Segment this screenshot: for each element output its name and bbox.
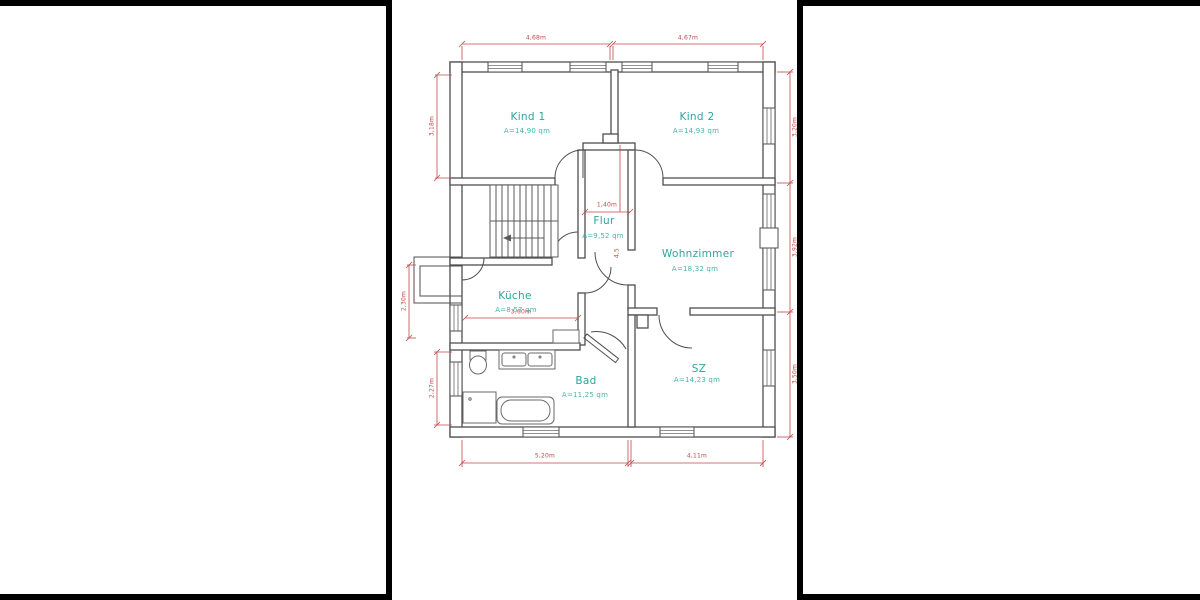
floor-plan-drawing [0,0,1200,600]
dim-left-bad: 2,27m [429,378,436,398]
dim-kueche-width: 3,60m [511,309,531,316]
area-label-kind1: A=14,90 qm [504,127,550,135]
dim-flur-door: 4,5 [614,248,621,258]
shower [463,392,496,423]
area-label-flur: A=9,52 qm [582,232,624,240]
dim-flur-width: 1,40m [597,202,617,209]
dim-bottom-left: 5,20m [535,453,555,460]
room-label-kind2: Kind 2 [680,111,715,123]
room-label-flur: Flur [593,215,614,227]
area-label-bad: A=11,25 qm [562,391,608,399]
dim-right-sz: 3,50m [792,364,799,384]
room-label-sz: SZ [692,363,706,375]
floor-plan-page: Kind 1 A=14,90 qm Kind 2 A=14,93 qm Flur… [0,0,1200,600]
dim-right-wohnzimmer: 3,92m [792,237,799,257]
kitchen-counter [553,330,579,343]
bathtub [497,397,554,424]
room-label-kueche: Küche [498,290,531,302]
area-label-kind2: A=14,93 qm [673,127,719,135]
dim-top-left: 4,68m [526,35,546,42]
dim-left-balcony: 2,30m [401,291,408,311]
room-label-bad: Bad [575,375,596,387]
toilet [470,351,487,374]
room-label-wohnzimmer: Wohnzimmer [662,248,734,260]
bathroom-fixtures [463,350,555,424]
area-label-sz: A=14,23 qm [674,376,720,384]
room-label-kind1: Kind 1 [511,111,546,123]
dim-left-kind1: 3,18m [429,116,436,136]
dim-bottom-right: 4,11m [687,453,707,460]
staircase [490,185,558,257]
dim-right-kind2: 3,20m [792,117,799,137]
dim-top-right: 4,67m [678,35,698,42]
area-label-wohnzimmer: A=18,32 qm [672,265,718,273]
